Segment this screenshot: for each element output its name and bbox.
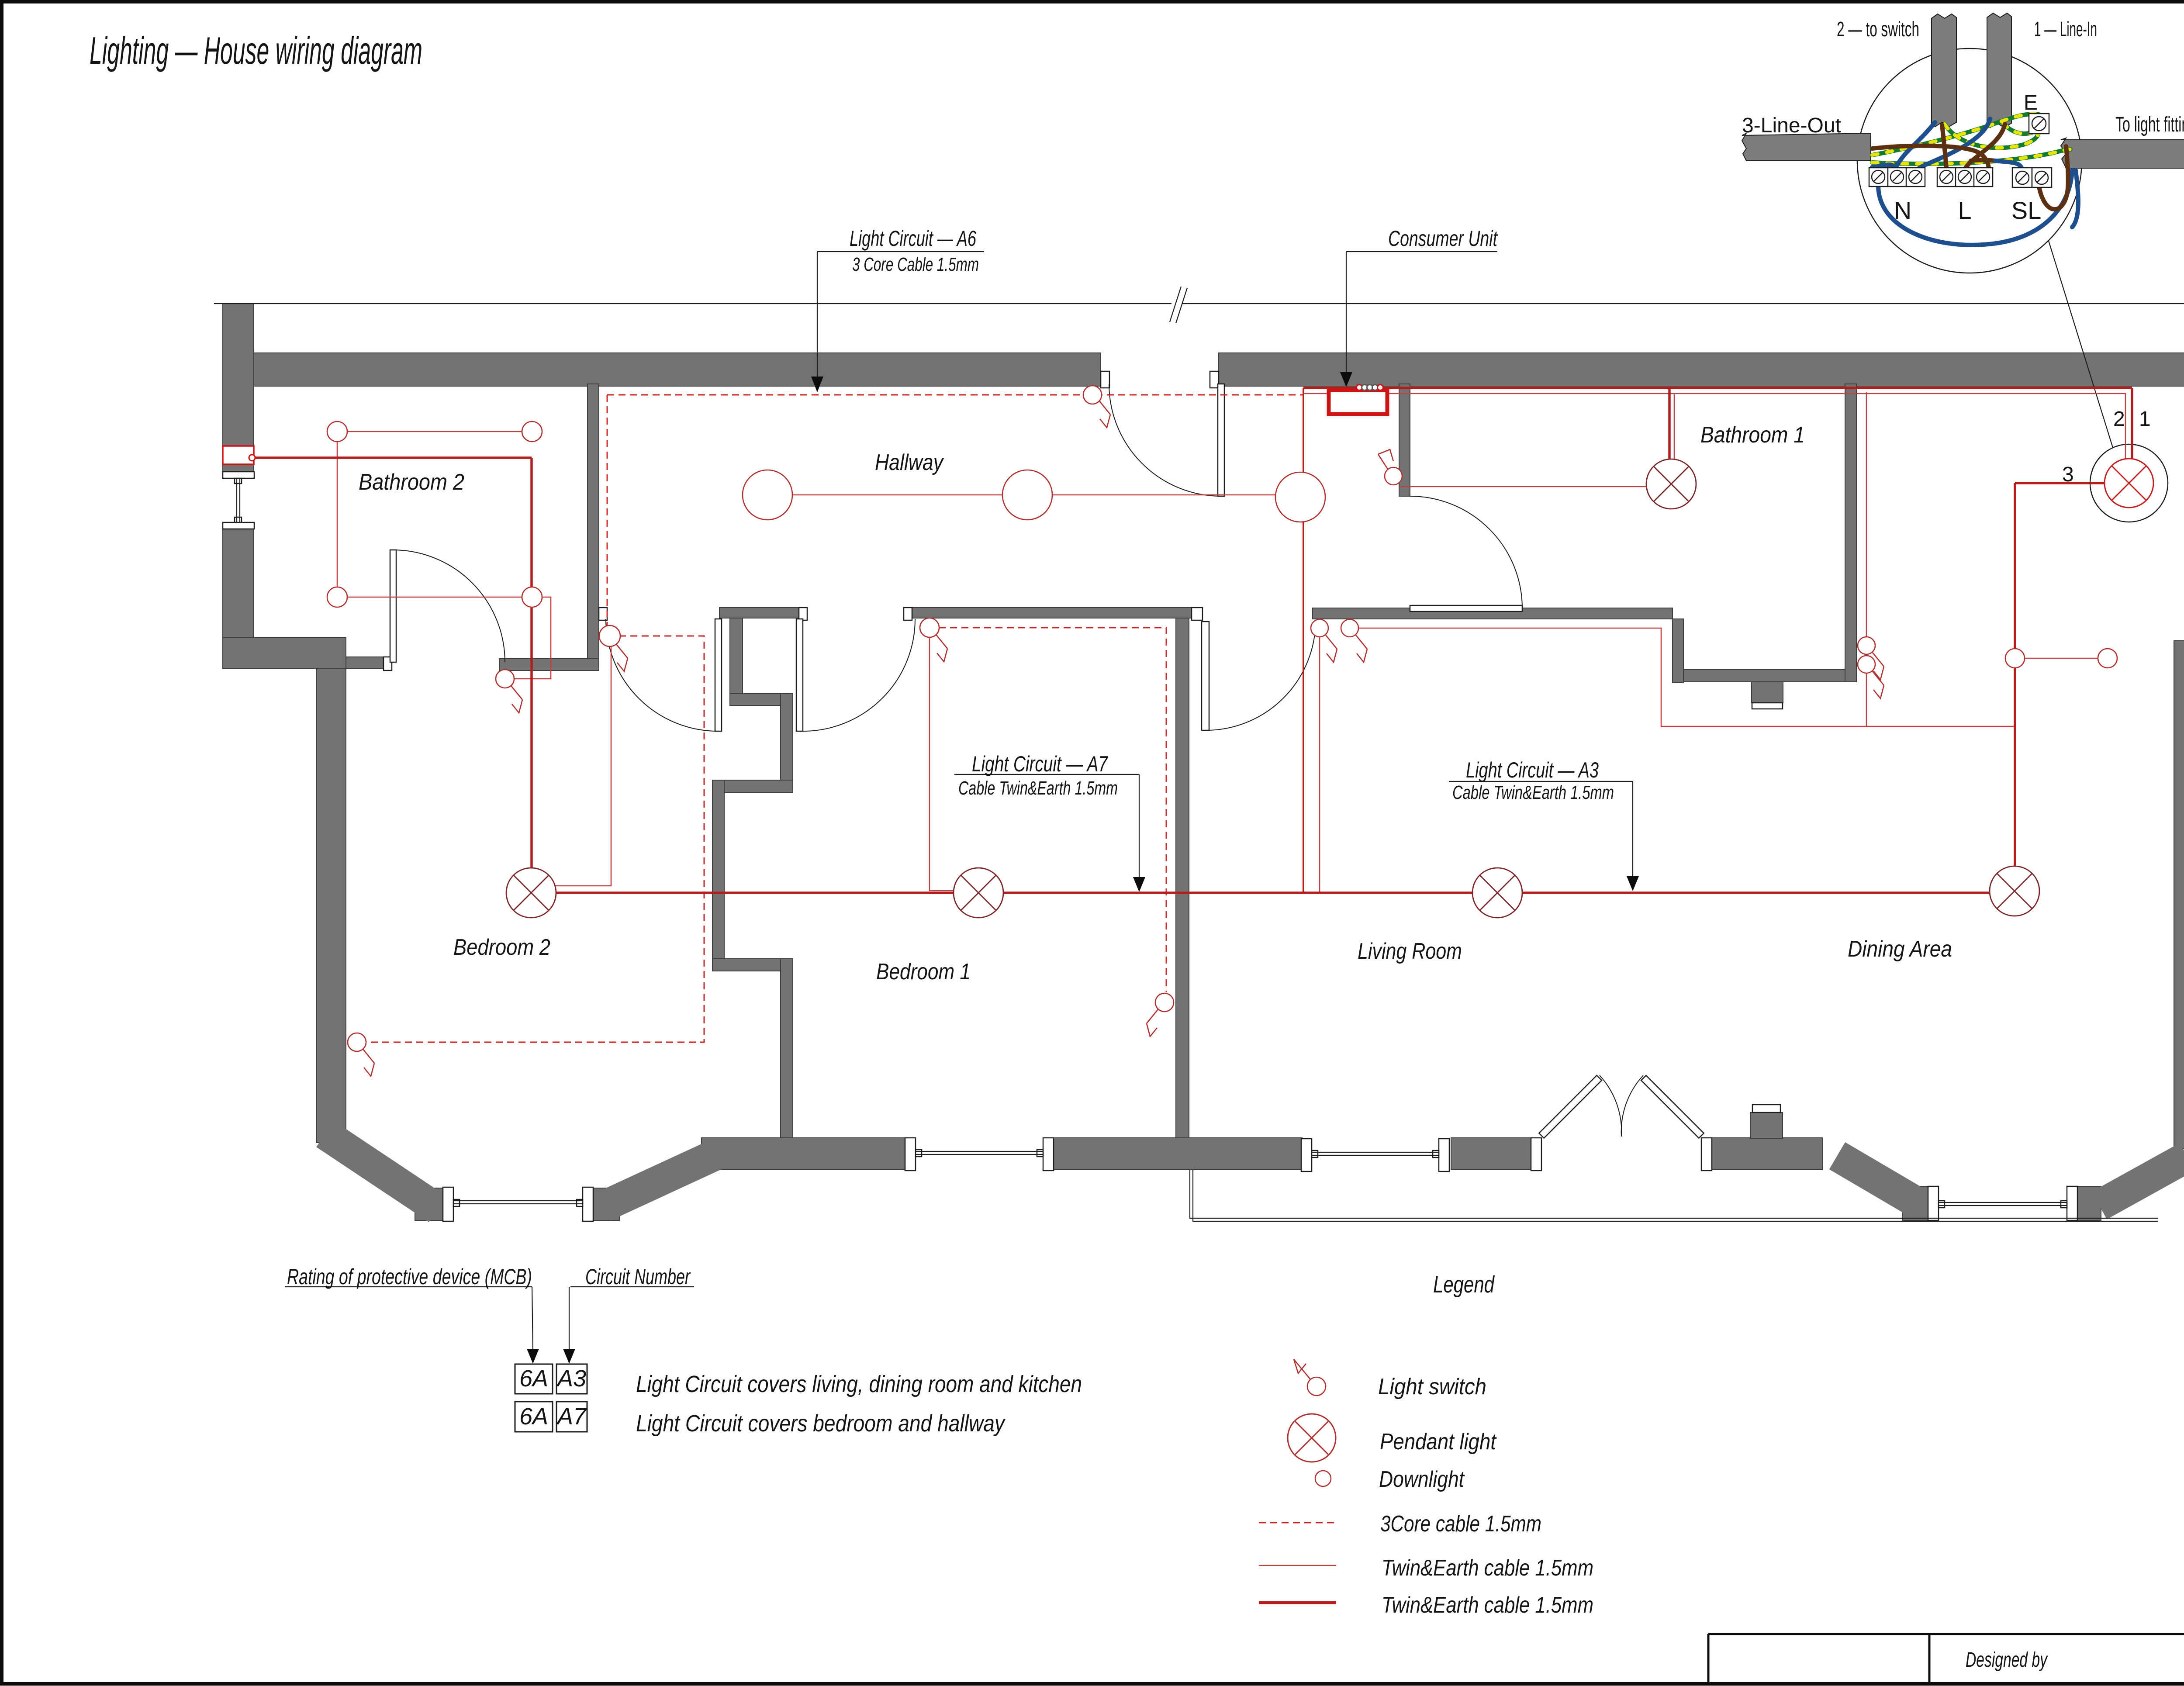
svg-text:1: 1 xyxy=(2139,408,2151,431)
svg-text:L: L xyxy=(1958,197,1971,224)
svg-text:To light fitting: To light fitting xyxy=(2115,113,2184,136)
svg-text:SL: SL xyxy=(2011,197,2042,224)
svg-text:Light Circuit — A3: Light Circuit — A3 xyxy=(1466,758,1599,782)
svg-text:Bedroom 1: Bedroom 1 xyxy=(876,959,971,985)
svg-text:E: E xyxy=(2024,91,2038,114)
svg-text:Downlight: Downlight xyxy=(1379,1467,1465,1492)
svg-text:Hallway: Hallway xyxy=(875,450,944,475)
svg-text:Bathroom 1: Bathroom 1 xyxy=(1700,422,1805,448)
svg-text:Light Circuit — A6: Light Circuit — A6 xyxy=(850,226,976,251)
svg-text:Lighting — House wiring diagra: Lighting — House wiring diagram xyxy=(90,29,422,72)
svg-text:Circuit Number: Circuit Number xyxy=(585,1264,691,1289)
svg-text:Legend: Legend xyxy=(1433,1271,1495,1298)
svg-text:2 — to switch: 2 — to switch xyxy=(1837,18,1919,41)
svg-text:Rating of protective device (M: Rating of protective device (MCB) xyxy=(287,1264,532,1289)
svg-text:Light switch: Light switch xyxy=(1378,1374,1486,1399)
svg-text:Cable Twin&Earth 1.5mm: Cable Twin&Earth 1.5mm xyxy=(1452,782,1614,803)
svg-text:6A: 6A xyxy=(519,1403,548,1430)
svg-text:A7: A7 xyxy=(556,1403,587,1430)
svg-text:Living Room: Living Room xyxy=(1358,939,1462,964)
svg-text:Consumer Unit: Consumer Unit xyxy=(1388,226,1498,251)
svg-text:Bathroom 2: Bathroom 2 xyxy=(359,470,464,495)
svg-text:3: 3 xyxy=(2062,463,2074,486)
svg-text:Pendant light: Pendant light xyxy=(1380,1429,1497,1455)
svg-text:2: 2 xyxy=(2113,408,2125,431)
svg-text:3-Line-Out: 3-Line-Out xyxy=(1742,114,1841,137)
svg-text:Light Circuit covers bedroom a: Light Circuit covers bedroom and hallway xyxy=(636,1410,1006,1437)
svg-text:6A: 6A xyxy=(519,1365,548,1392)
svg-text:1 — Line-In: 1 — Line-In xyxy=(2034,18,2097,41)
svg-text:Bedroom 2: Bedroom 2 xyxy=(453,935,550,960)
svg-text:Twin&Earth cable 1.5mm: Twin&Earth cable 1.5mm xyxy=(1382,1555,1593,1581)
svg-text:3Core cable 1.5mm: 3Core cable 1.5mm xyxy=(1380,1511,1541,1537)
svg-text:N: N xyxy=(1894,197,1911,224)
svg-text:Light Circuit covers living, d: Light Circuit covers living, dining room… xyxy=(636,1371,1082,1397)
svg-text:3 Core Cable 1.5mm: 3 Core Cable 1.5mm xyxy=(852,254,979,275)
svg-text:A3: A3 xyxy=(556,1365,586,1392)
svg-text:Cable Twin&Earth 1.5mm: Cable Twin&Earth 1.5mm xyxy=(958,777,1118,799)
svg-text:Designed by: Designed by xyxy=(1966,1648,2048,1672)
svg-text:Twin&Earth cable 1.5mm: Twin&Earth cable 1.5mm xyxy=(1382,1593,1593,1618)
svg-text:Light Circuit — A7: Light Circuit — A7 xyxy=(972,752,1109,776)
svg-text:Dining Area: Dining Area xyxy=(1848,936,1952,962)
